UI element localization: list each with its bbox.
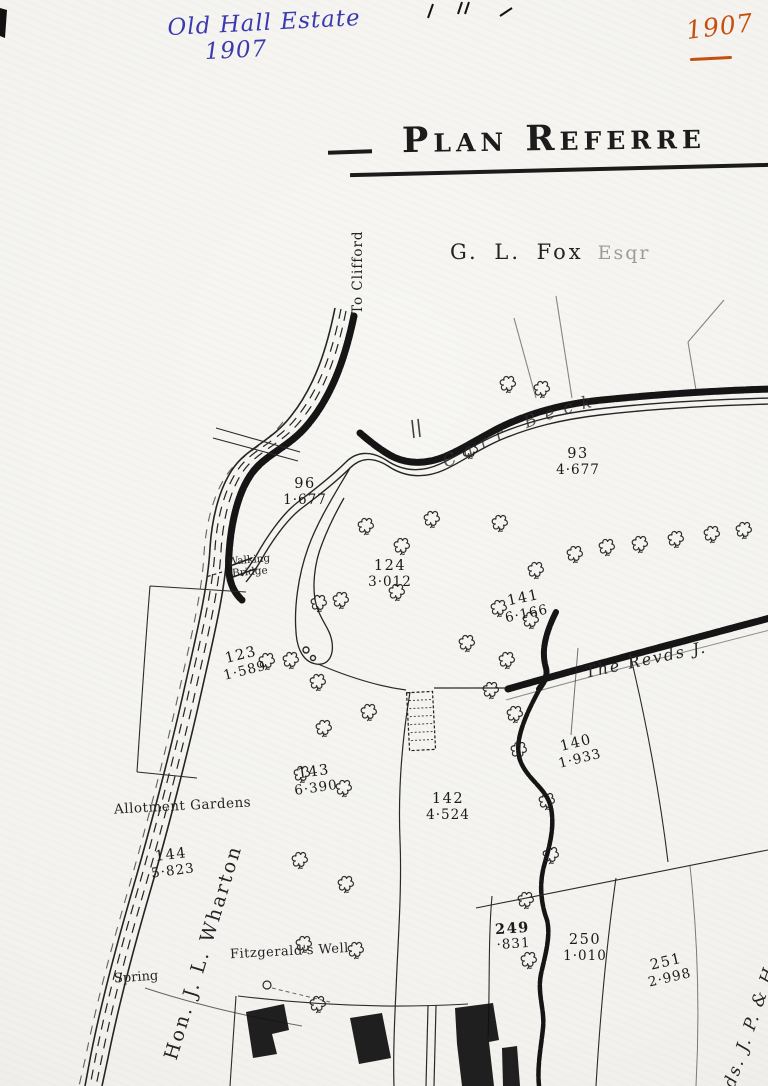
tree-icon — [333, 592, 348, 609]
tree-icon — [338, 876, 353, 893]
tree-icon — [361, 704, 376, 721]
buildings — [246, 1003, 520, 1086]
scan-corner-mark — [0, 8, 7, 38]
parcel-number: 93 — [540, 447, 616, 463]
tree-icon — [599, 539, 614, 556]
tree-icon — [534, 381, 549, 398]
owner-name: G. L. Fox — [450, 240, 584, 264]
to-clifford-label: To Clifford — [350, 230, 366, 314]
parcel-label: 142 4·524 — [410, 792, 486, 822]
tree-icons — [259, 376, 751, 1013]
glasshouse-outline — [407, 691, 436, 750]
parcel-label: 96 1·677 — [267, 477, 343, 507]
scan-edge-marks — [412, 2, 512, 438]
parcel-label: 124 3·012 — [352, 559, 428, 589]
parcel-area: 4·677 — [540, 463, 616, 478]
tree-icon — [394, 538, 409, 555]
parcel-label: 249 ·831 — [474, 918, 552, 953]
tree-icon — [310, 674, 325, 691]
tree-icon — [459, 635, 474, 652]
tree-icon — [528, 562, 543, 579]
spring-label: Spring — [114, 968, 159, 986]
tree-icon — [499, 652, 514, 669]
tree-icon — [507, 706, 522, 723]
tree-icon — [424, 511, 439, 528]
tree-icon — [518, 892, 533, 909]
plan-title: Plan Referre — [402, 116, 706, 161]
parcel-area: 1·010 — [547, 949, 623, 964]
tree-icon — [736, 522, 751, 539]
tree-icon — [316, 720, 331, 737]
tree-icon — [283, 652, 298, 669]
parcel-area: 1·677 — [267, 493, 343, 508]
tree-icon — [704, 526, 719, 543]
tree-icon — [358, 518, 373, 535]
map-drawing: Carr Beck — [0, 0, 768, 1086]
parcel-label: 250 1·010 — [547, 933, 623, 963]
parcel-label: 93 4·677 — [540, 447, 616, 477]
scanned-plan-page: Carr Beck Old Hall Estate 1907 1907 Plan… — [0, 0, 768, 1086]
parcel-number: 96 — [267, 477, 343, 493]
tree-icon — [292, 852, 307, 869]
owner-suffix: Esqr — [598, 242, 651, 264]
tree-icon — [311, 595, 326, 612]
tree-icon — [668, 531, 683, 548]
walking-bridge-label: Walking Bridge — [227, 552, 272, 580]
tree-icon — [310, 996, 325, 1013]
parcel-number: 124 — [352, 559, 428, 575]
parcel-area: 4·524 — [410, 808, 486, 823]
blue-annotation: Old Hall Estate 1907 — [167, 5, 363, 67]
tree-icon — [500, 376, 515, 393]
parcel-number: 142 — [410, 792, 486, 808]
tree-icon — [492, 515, 507, 532]
tree-icon — [632, 536, 647, 553]
tree-icon — [567, 546, 582, 563]
tree-icon — [483, 682, 498, 699]
parcel-number: 250 — [547, 933, 623, 949]
tree-icon — [521, 952, 536, 969]
parcel-area: 3·012 — [352, 575, 428, 590]
owner-line: G. L. FoxEsqr — [450, 240, 650, 264]
